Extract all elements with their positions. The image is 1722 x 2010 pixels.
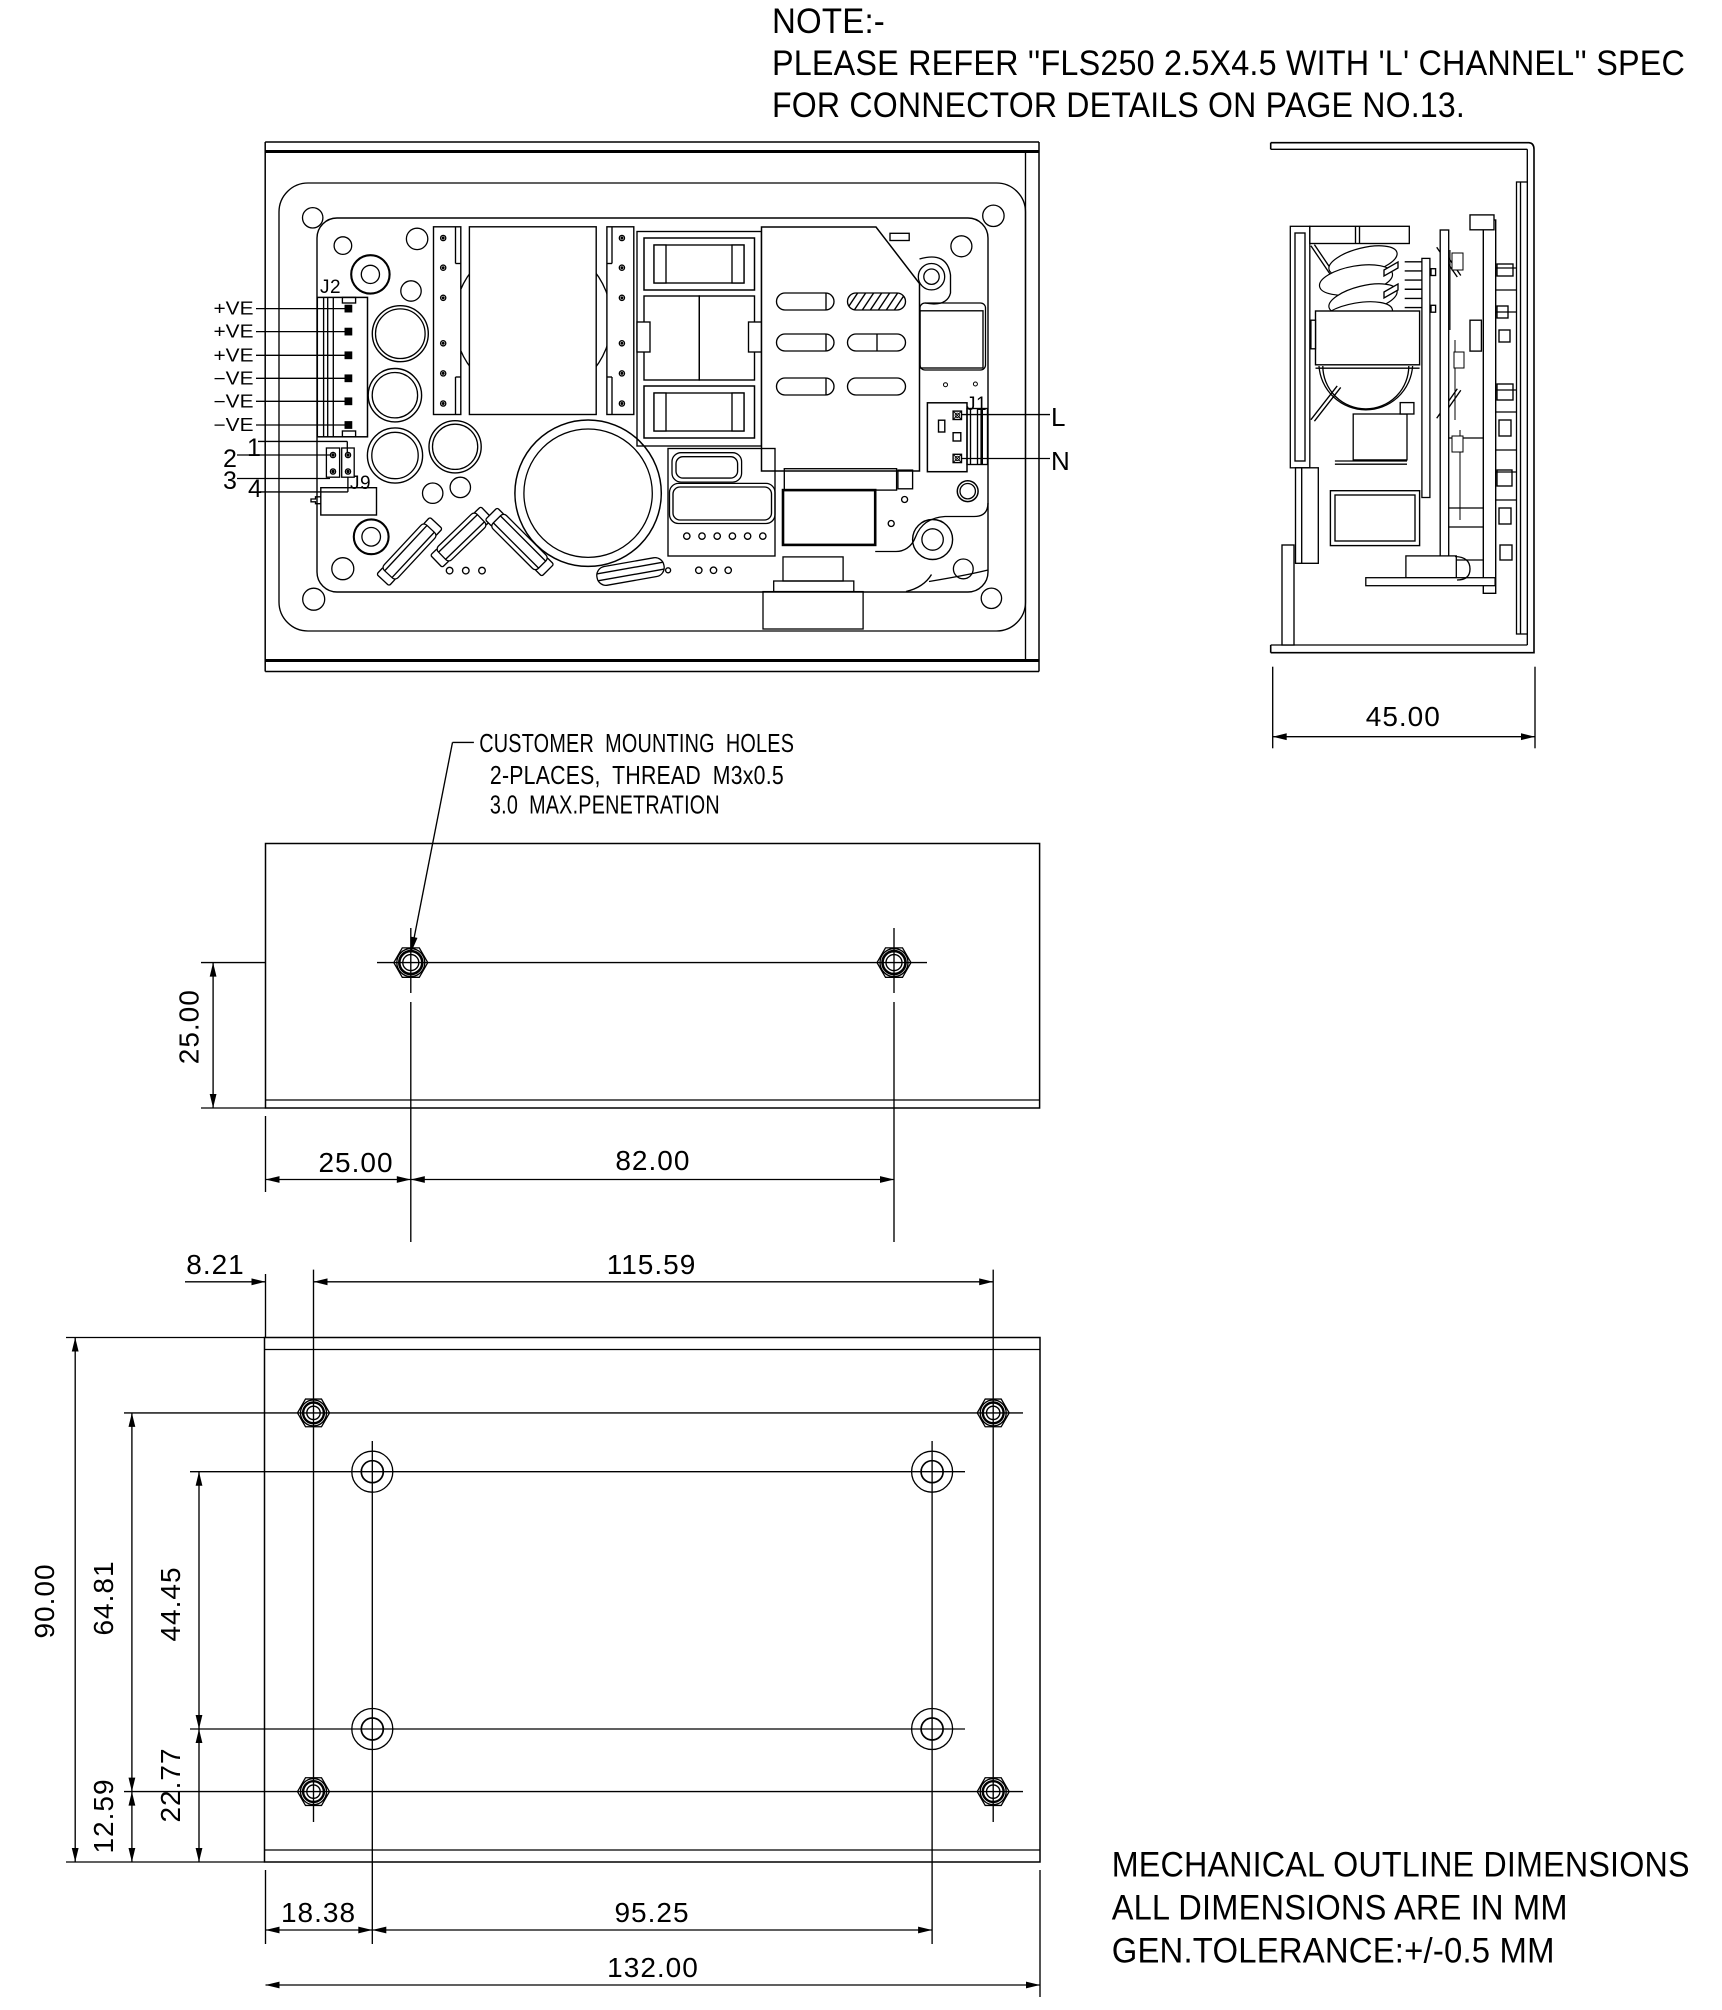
svg-text:CUSTOMER MOUNTING HOLES: CUSTOMER MOUNTING HOLES (479, 728, 794, 758)
svg-text:2-PLACES, THREAD M3x0.5: 2-PLACES, THREAD M3x0.5 (490, 760, 784, 790)
svg-text:44.45: 44.45 (155, 1566, 186, 1641)
svg-text:GEN.TOLERANCE:+/-0.5 MM: GEN.TOLERANCE:+/-0.5 MM (1112, 1931, 1555, 1970)
svg-text:64.81: 64.81 (88, 1560, 119, 1635)
svg-text:115.59: 115.59 (607, 1249, 697, 1280)
svg-text:+VE: +VE (214, 299, 254, 319)
svg-text:−VE: −VE (214, 391, 254, 411)
svg-text:12.59: 12.59 (88, 1778, 119, 1853)
svg-text:8.21: 8.21 (186, 1249, 245, 1280)
svg-text:1: 1 (247, 434, 261, 462)
svg-text:MECHANICAL OUTLINE DIMENSIONS: MECHANICAL OUTLINE DIMENSIONS (1112, 1846, 1690, 1885)
svg-text:82.00: 82.00 (615, 1145, 690, 1176)
svg-text:25.00: 25.00 (318, 1147, 393, 1178)
svg-text:N: N (1051, 446, 1070, 476)
svg-text:95.25: 95.25 (614, 1897, 689, 1928)
svg-text:18.38: 18.38 (281, 1897, 356, 1928)
svg-text:22.77: 22.77 (155, 1747, 186, 1822)
svg-text:+VE: +VE (214, 322, 254, 342)
svg-text:PLEASE REFER ''FLS250 2.5X4.5: PLEASE REFER ''FLS250 2.5X4.5 WITH 'L' C… (772, 44, 1685, 83)
svg-text:3.0 MAX.PENETRATION: 3.0 MAX.PENETRATION (490, 790, 720, 820)
svg-text:132.00: 132.00 (607, 1952, 699, 1983)
svg-text:3: 3 (223, 467, 237, 495)
svg-text:4: 4 (248, 475, 262, 503)
svg-text:FOR CONNECTOR DETAILS ON PAGE: FOR CONNECTOR DETAILS ON PAGE NO.13. (772, 86, 1465, 125)
svg-text:−VE: −VE (214, 368, 254, 388)
svg-text:L: L (1051, 402, 1066, 432)
svg-text:45.00: 45.00 (1366, 701, 1441, 732)
svg-text:NOTE:-: NOTE:- (772, 2, 885, 41)
svg-text:J2: J2 (320, 277, 341, 298)
svg-text:25.00: 25.00 (174, 989, 205, 1064)
svg-text:+VE: +VE (214, 345, 254, 365)
svg-text:ALL DIMENSIONS ARE IN MM: ALL DIMENSIONS ARE IN MM (1112, 1889, 1568, 1928)
svg-text:J1: J1 (966, 394, 987, 415)
svg-text:90.00: 90.00 (29, 1563, 60, 1638)
svg-text:−VE: −VE (214, 415, 254, 435)
svg-text:J9: J9 (350, 473, 371, 494)
